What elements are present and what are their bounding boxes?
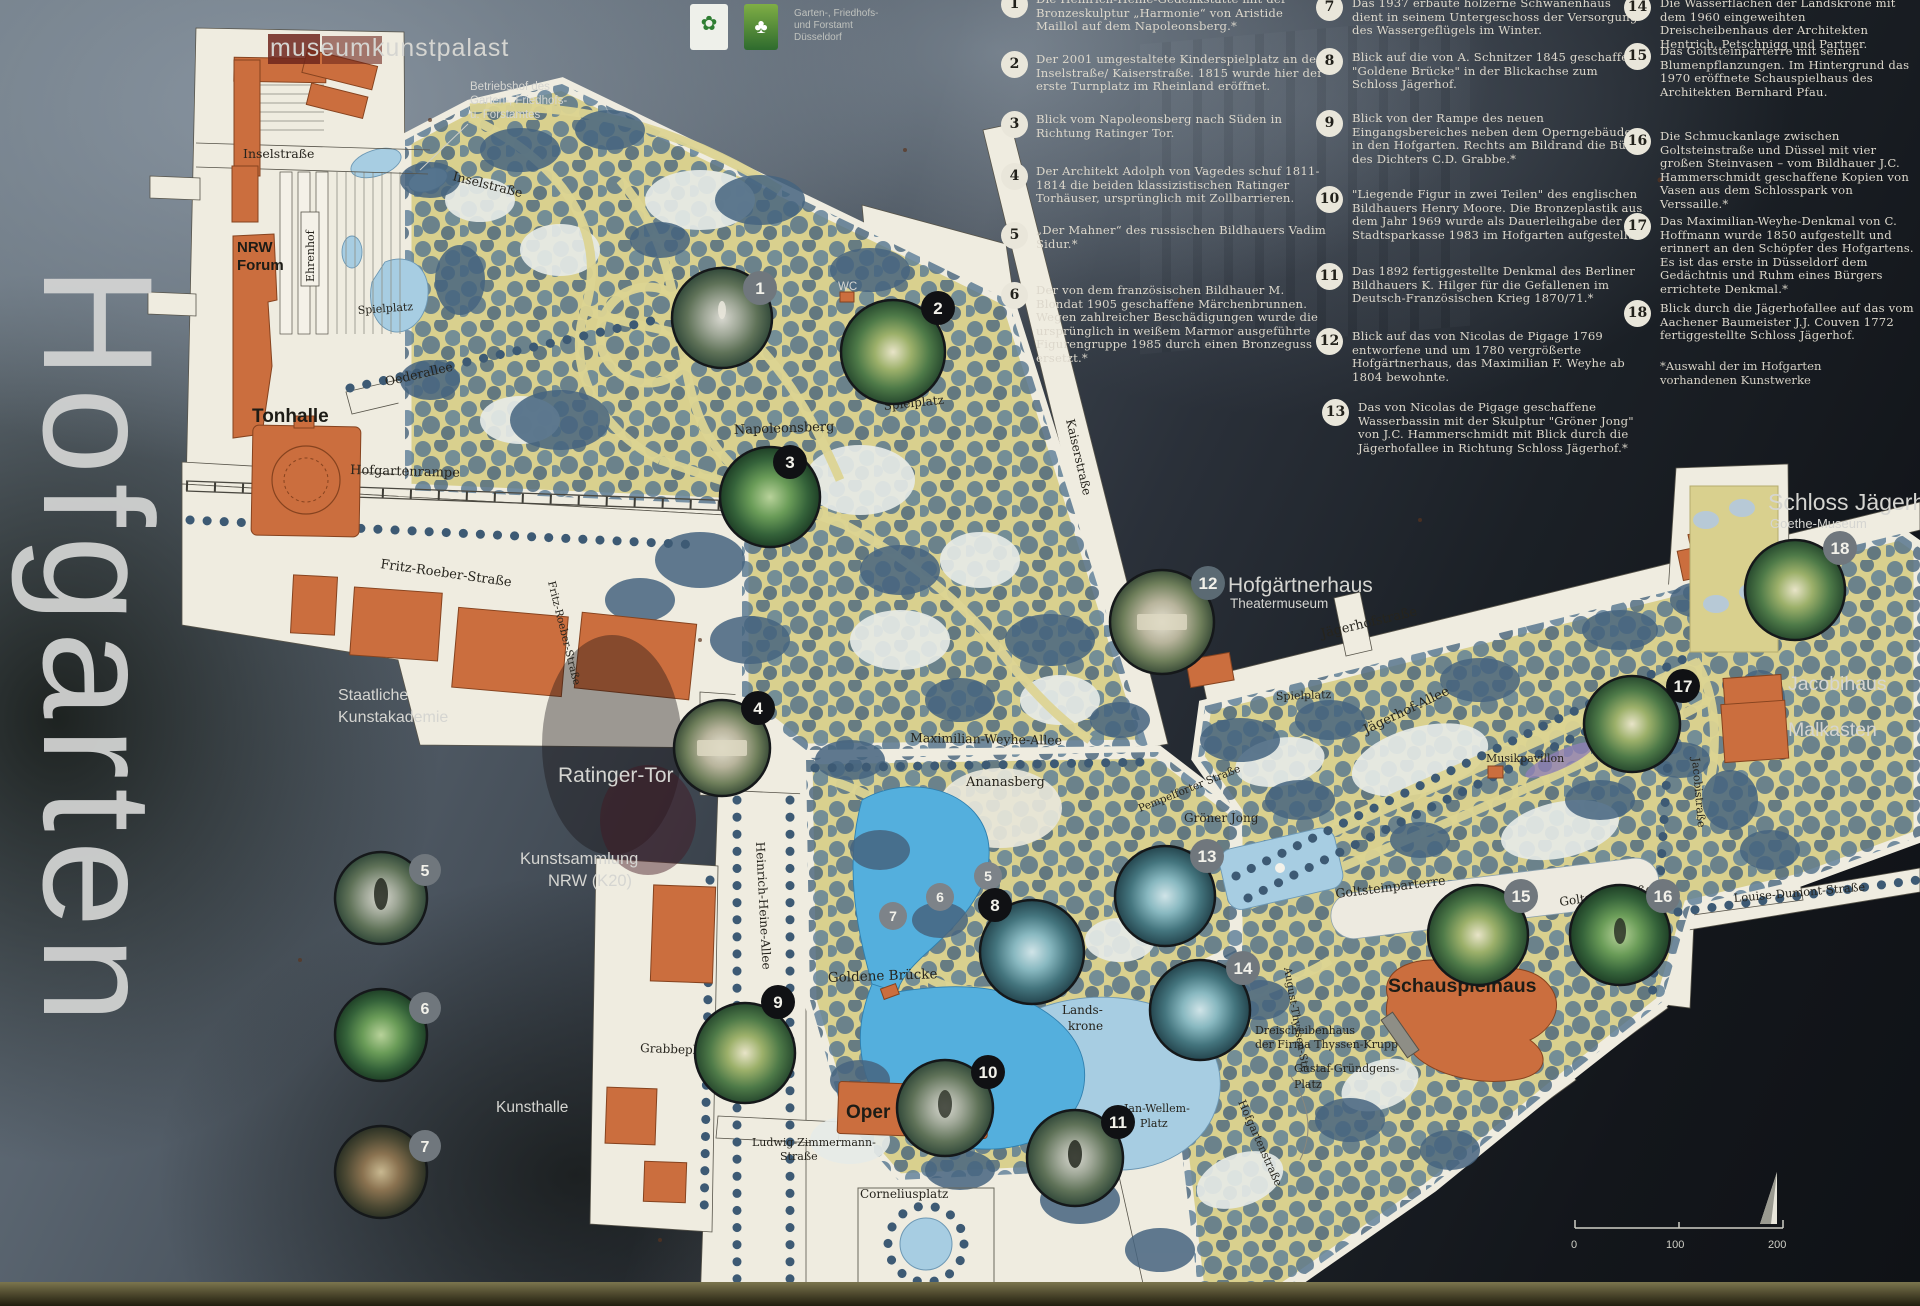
photo-badge-7: 7 [421,1139,430,1156]
label-ananasberg: Ananasberg [965,775,1045,790]
label-betriebshof-1: Betriebshof des [470,81,550,93]
information-board: museumkunstpalast Betriebshof des Garten… [0,0,1920,1306]
legend-text-9: Blick von der Rampe des neuen Eingangsbe… [1352,112,1646,166]
label-museumkunstpalast: museumkunstpalast [270,34,509,62]
legend-number-4: 4 [1001,163,1028,190]
label-goethe-museum: Goethe-Museum [1770,516,1867,531]
photo-badge-6: 6 [421,1001,430,1018]
label-kunstakademie-2: Kunstakademie [338,709,448,726]
dusseldorf-garden-dept-logo: ✿ [690,4,728,50]
map-badge-9: 9 [773,993,782,1012]
legend-text-8: Blick auf die von A. Schnitzer 1845 gesc… [1352,51,1646,92]
photo-inset-17 [1584,676,1680,772]
north-arrow-icon [1760,1172,1777,1224]
k20-building [650,885,715,983]
label-landskrone-2: krone [1068,1019,1103,1033]
label-jacobihaus: Jacobihaus [1788,673,1887,695]
legend-text-2: Der 2001 umgestaltete Kinderspielplatz a… [1036,53,1328,94]
legend-number-5: 5 [1001,222,1028,249]
label-nrw-forum-2: Forum [237,257,284,274]
legend-text-3: Blick vom Napoleonsberg nach Süden in Ri… [1036,113,1328,140]
legend-text-12: Blick auf das von Nicolas de Pigage 1769… [1352,330,1646,384]
photo-badge-5: 5 [421,863,430,880]
map-badge-5: 5 [984,868,992,884]
map-badge-3: 3 [785,453,794,472]
label-ehrenhof: Ehrenhof [304,229,317,282]
legend-number-13: 13 [1322,399,1349,426]
legend-text-11: Das 1892 fertiggestellte Denkmal des Ber… [1352,265,1646,306]
legend-number-15: 15 [1624,43,1651,70]
legend-text-7: Das 1937 erbaute hölzerne Schwanenhaus d… [1352,0,1646,38]
legend-text-16: Die Schmuckanlage zwischen Goltsteinstra… [1660,130,1914,211]
label-betriebshof-3: u. Forstamtes [470,109,541,121]
legend-text-1: Die Heinrich-Heine-Gedenkstätte mit der … [1036,0,1328,34]
label-theatermuseum: Theatermuseum [1230,596,1328,611]
legend-number-18: 18 [1624,300,1651,327]
musikpavillon-building [1488,766,1503,778]
map-badge-13: 13 [1198,847,1217,866]
label-betriebshof-2: Garten-, Friedhofs- [470,95,567,107]
label-landskrone-1: Lands- [1062,1003,1103,1017]
legend-number-9: 9 [1316,110,1343,137]
legend-text-15: Das Goltsteinparterre mit seinen Blumenp… [1660,45,1914,99]
label-ratinger-tor: Ratinger-Tor [558,764,674,787]
map-badge-17: 17 [1674,677,1693,696]
label-corneliusplatz: Corneliusplatz [860,1187,948,1201]
agency-line-3: Düsseldorf [794,32,878,44]
legend-number-11: 11 [1316,263,1343,290]
scale-tick-100: 100 [1666,1239,1684,1251]
legend-text-6: Der von dem französischen Bildhauer M. B… [1036,284,1328,365]
legend-number-2: 2 [1001,51,1028,78]
label-tonhalle: Tonhalle [252,406,329,427]
map-badge-6: 6 [936,889,944,905]
legend-number-16: 16 [1624,128,1651,155]
legend-number-6: 6 [1001,282,1028,309]
fountain-dot [1275,863,1285,873]
label-malkasten: Malkasten [1788,719,1877,741]
label-kunstsammlung-2: NRW (K20) [548,872,632,890]
label-kunstsammlung-1: Kunstsammlung [520,850,638,868]
board-frame-bottom [0,1282,1920,1306]
label-schloss-jaegerhof: Schloss Jägerhof [1768,489,1920,515]
legend-text-17: Das Maximilian-Weyhe-Denkmal von C. Hoff… [1660,215,1914,296]
legend-text-4: Der Architekt Adolph von Vagedes schuf 1… [1036,165,1328,206]
kunsthalle-building [605,1087,657,1145]
label-wc: WC [838,281,857,293]
agency-line-1: Garten-, Friedhofs- [794,8,878,20]
tonhalle-building [251,425,361,537]
map-badge-10: 10 [979,1063,998,1082]
label-ludwig-zimmermann-1: Ludwig-Zimmermann- [752,1136,876,1149]
legend-number-8: 8 [1316,48,1343,75]
legend-number-3: 3 [1001,111,1028,138]
map-badge-11: 11 [1109,1113,1127,1132]
label-jan-wellem-1: Jan-Wellem- [1123,1102,1190,1115]
legend-text-5: „Der Mahner“ des russischen Bildhauers V… [1036,224,1328,251]
map-badge-2: 2 [933,299,942,318]
map-badge-7: 7 [889,908,897,924]
scale-bar [1575,1220,1783,1228]
label-gustaf-2: Platz [1294,1078,1322,1091]
scale-tick-200: 200 [1768,1239,1786,1251]
label-kunstakademie-1: Staatliche [338,687,408,704]
map-badge-18: 18 [1831,539,1850,558]
label-jan-wellem-2: Platz [1140,1117,1168,1130]
forest-dept-logo: ♣ [744,4,778,50]
legend-footnote: *Auswahl der im Hofgarten vorhandenen Ku… [1660,360,1900,388]
agency-line-2: und Forstamt [794,20,878,32]
scale-tick-0: 0 [1571,1239,1577,1251]
label-hofgaertnerhaus: Hofgärtnerhaus [1228,574,1373,597]
label-oper: Oper [846,1102,891,1123]
label-kunsthalle: Kunsthalle [496,1099,568,1116]
label-nrw-forum-1: NRW [237,239,273,256]
legend-text-10: "Liegende Figur in zwei Teilen" des engl… [1352,188,1646,242]
label-musikpavillon: Musikpavillon [1486,752,1564,765]
legend-text-13: Das von Nicolas de Pigage geschaffene Wa… [1358,401,1652,455]
label-inselstrasse-w: Inselstraße [243,146,314,161]
map-badge-1: 1 [755,279,764,298]
map-badge-16: 16 [1654,887,1673,906]
legend-number-10: 10 [1316,186,1343,213]
map-badge-12: 12 [1199,574,1218,593]
label-ludwig-zimmermann-2: Straße [780,1150,818,1163]
board-title-vertical: Hofgarten [7,266,186,1032]
wc-building [840,292,854,302]
label-max-weyhe-allee: Maximilian-Weyhe-Allee [910,730,1062,748]
map-badge-15: 15 [1512,887,1531,906]
map-badge-14: 14 [1234,959,1253,978]
map-badge-4: 4 [753,699,763,718]
legend-text-18: Blick durch die Jägerhofallee auf das vo… [1660,302,1914,343]
kunstakademie-building [452,607,569,696]
label-dreischeibenhaus-2: der Firma Thyssen-Krupp [1255,1038,1398,1051]
label-groener-jong: Gröner Jong [1184,811,1259,825]
label-spielplatz-e: Spielplatz [1276,688,1332,703]
legend-number-12: 12 [1316,328,1343,355]
label-hofgartenrampe: Hofgartenrampe [350,463,461,481]
agency-caption: Garten-, Friedhofs- und Forstamt Düsseld… [794,8,878,44]
legend-number-17: 17 [1624,213,1651,240]
map-badge-8: 8 [990,896,999,915]
